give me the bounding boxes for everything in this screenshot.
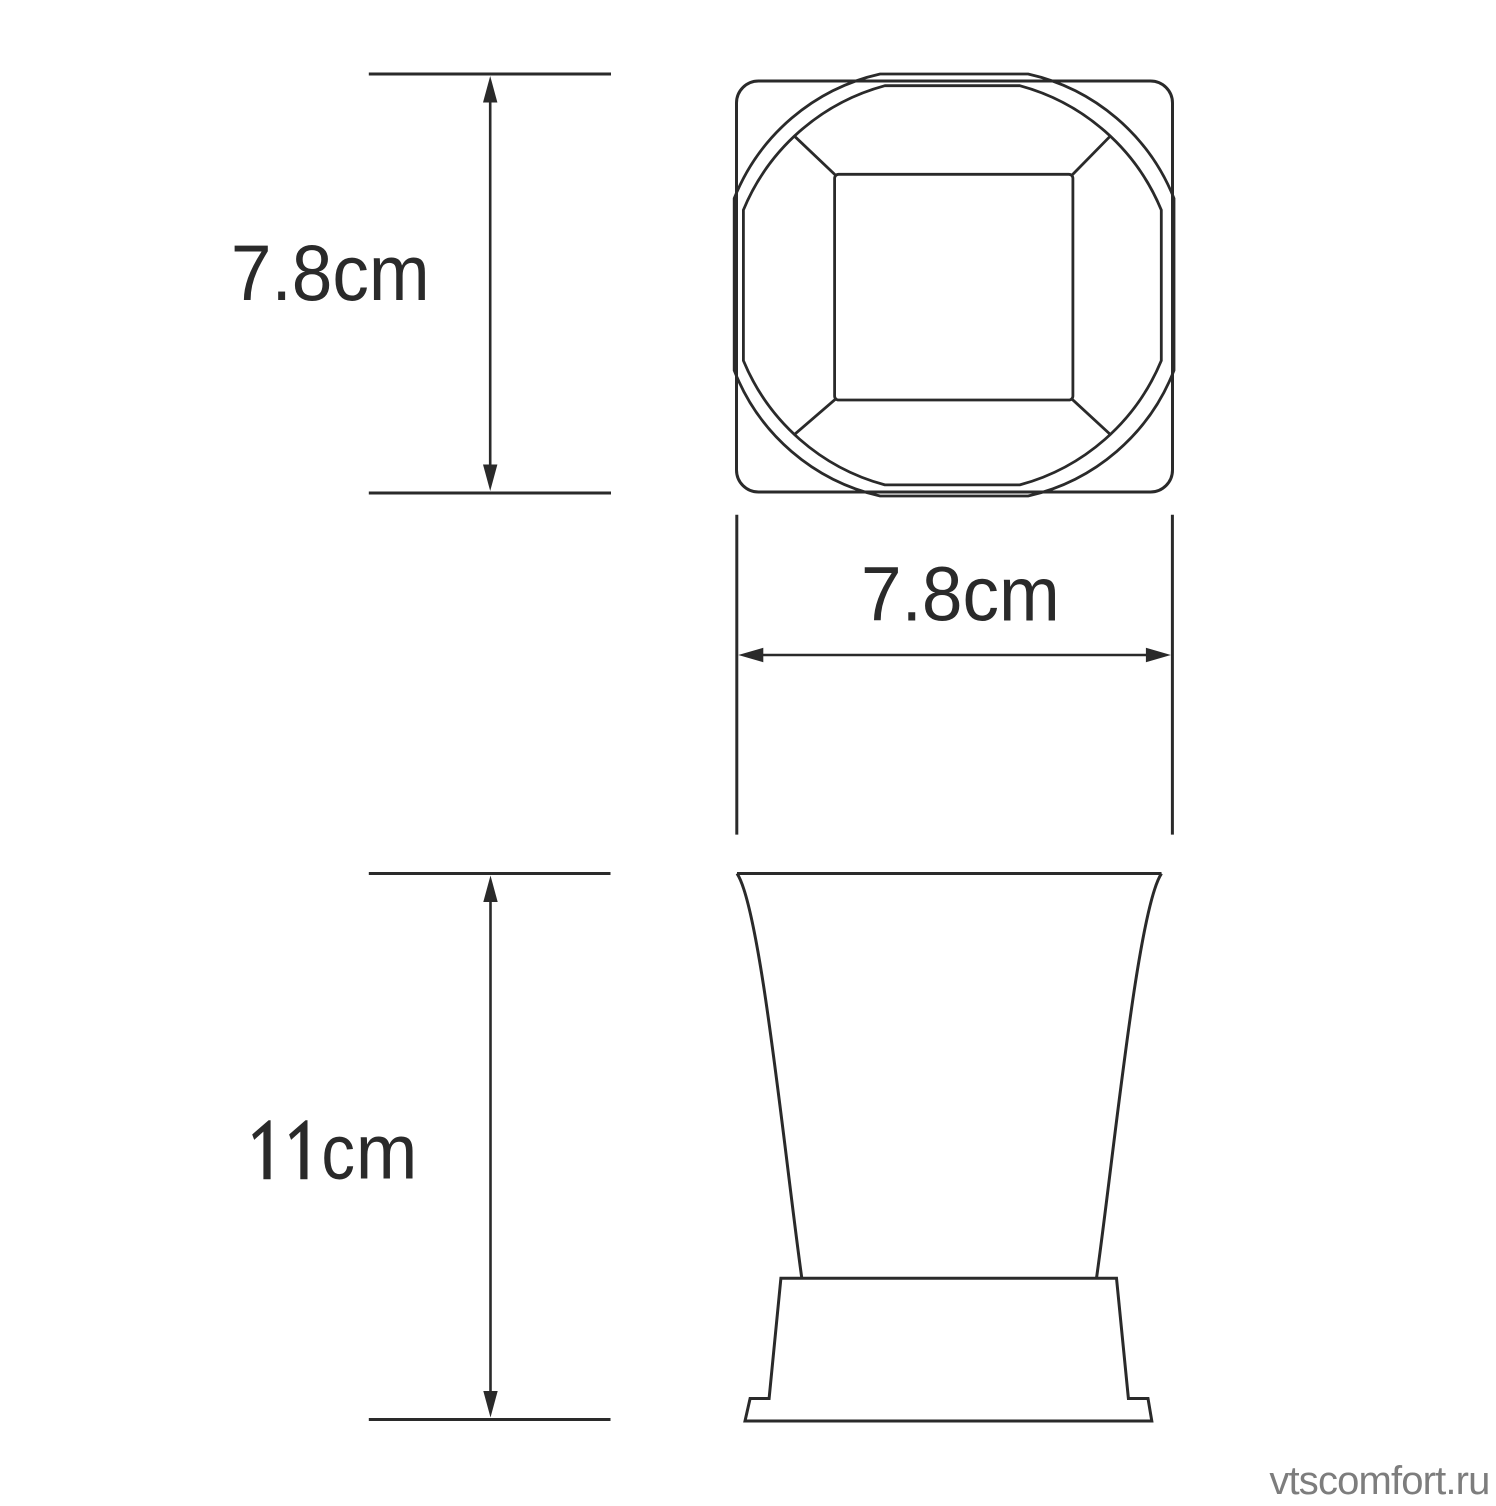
svg-text:m: m [356, 1109, 418, 1196]
svg-text:7.8cm: 7.8cm [231, 230, 430, 318]
svg-text:7.8cm: 7.8cm [861, 551, 1060, 637]
svg-text:vtscomfort.ru: vtscomfort.ru [1269, 1459, 1489, 1503]
svg-text:c: c [321, 1109, 355, 1196]
